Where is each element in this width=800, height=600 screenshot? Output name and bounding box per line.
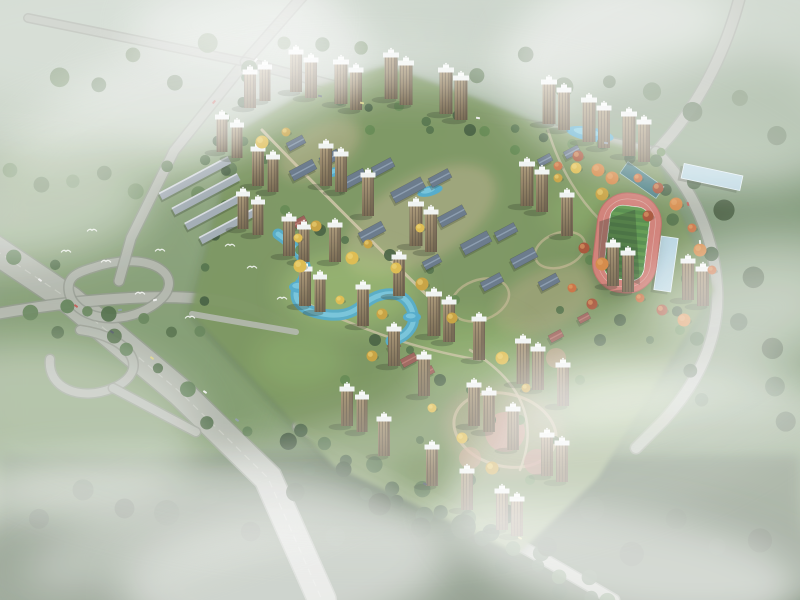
mist-overlay xyxy=(0,0,800,600)
scene-canvas xyxy=(0,0,800,600)
aerial-rendering xyxy=(0,0,800,600)
haze-veil xyxy=(0,0,800,600)
